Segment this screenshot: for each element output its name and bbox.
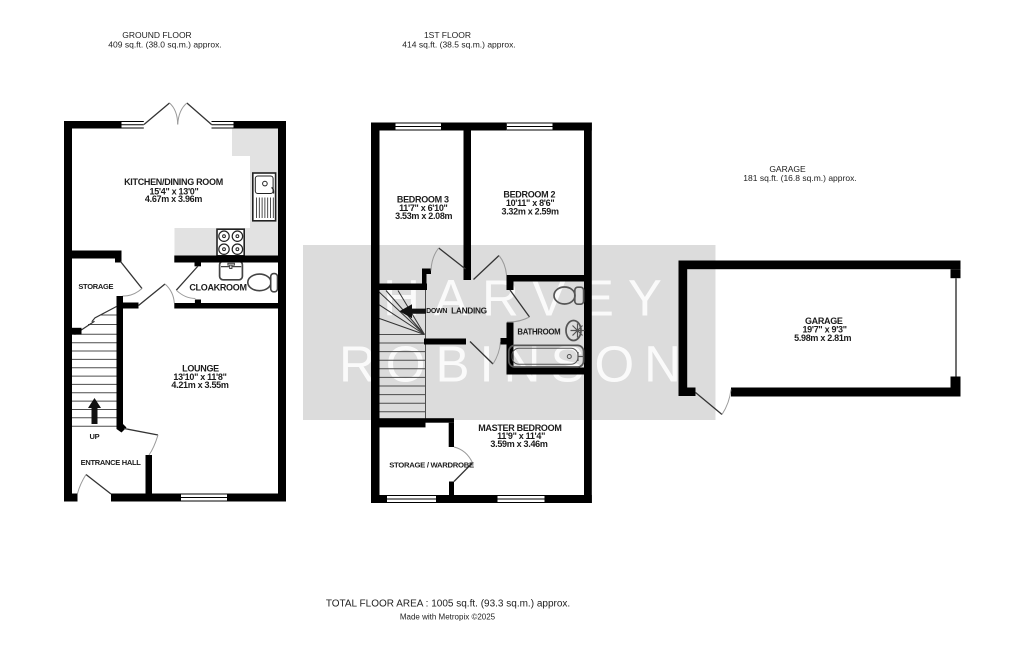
svg-text:3.32m x 2.59m: 3.32m x 2.59m (502, 207, 559, 217)
svg-text:UP: UP (89, 432, 99, 441)
svg-text:3.53m x 2.08m: 3.53m x 2.08m (395, 211, 452, 221)
svg-text:181 sq.ft. (16.8 sq.m.) approx: 181 sq.ft. (16.8 sq.m.) approx. (743, 173, 856, 183)
svg-text:5.98m x 2.81m: 5.98m x 2.81m (794, 333, 851, 343)
svg-text:409 sq.ft. (38.0 sq.m.) approx: 409 sq.ft. (38.0 sq.m.) approx. (108, 40, 221, 50)
svg-text:DOWN: DOWN (426, 308, 447, 315)
svg-text:LANDING: LANDING (451, 306, 487, 316)
svg-text:Made with Metropix ©2025: Made with Metropix ©2025 (400, 613, 496, 622)
svg-text:414 sq.ft. (38.5 sq.m.) approx: 414 sq.ft. (38.5 sq.m.) approx. (402, 40, 515, 50)
svg-text:1ST FLOOR: 1ST FLOOR (424, 30, 471, 40)
svg-text:ENTRANCE HALL: ENTRANCE HALL (81, 458, 142, 467)
svg-text:GROUND FLOOR: GROUND FLOOR (122, 30, 191, 40)
svg-text:STORAGE / WARDROBE: STORAGE / WARDROBE (389, 460, 474, 469)
svg-text:ROBINSON: ROBINSON (339, 336, 691, 393)
svg-text:BATHROOM: BATHROOM (517, 328, 560, 337)
svg-text:KITCHEN/DINING ROOM: KITCHEN/DINING ROOM (124, 177, 223, 187)
svg-text:CLOAKROOM: CLOAKROOM (189, 283, 246, 293)
svg-text:4.67m x 3.96m: 4.67m x 3.96m (145, 194, 202, 204)
svg-text:TOTAL FLOOR AREA : 1005 sq.ft.: TOTAL FLOOR AREA : 1005 sq.ft. (93.3 sq.… (326, 599, 570, 610)
svg-text:3.59m x 3.46m: 3.59m x 3.46m (490, 439, 547, 449)
svg-text:STORAGE: STORAGE (78, 282, 113, 291)
svg-text:4.21m x 3.55m: 4.21m x 3.55m (171, 380, 228, 390)
